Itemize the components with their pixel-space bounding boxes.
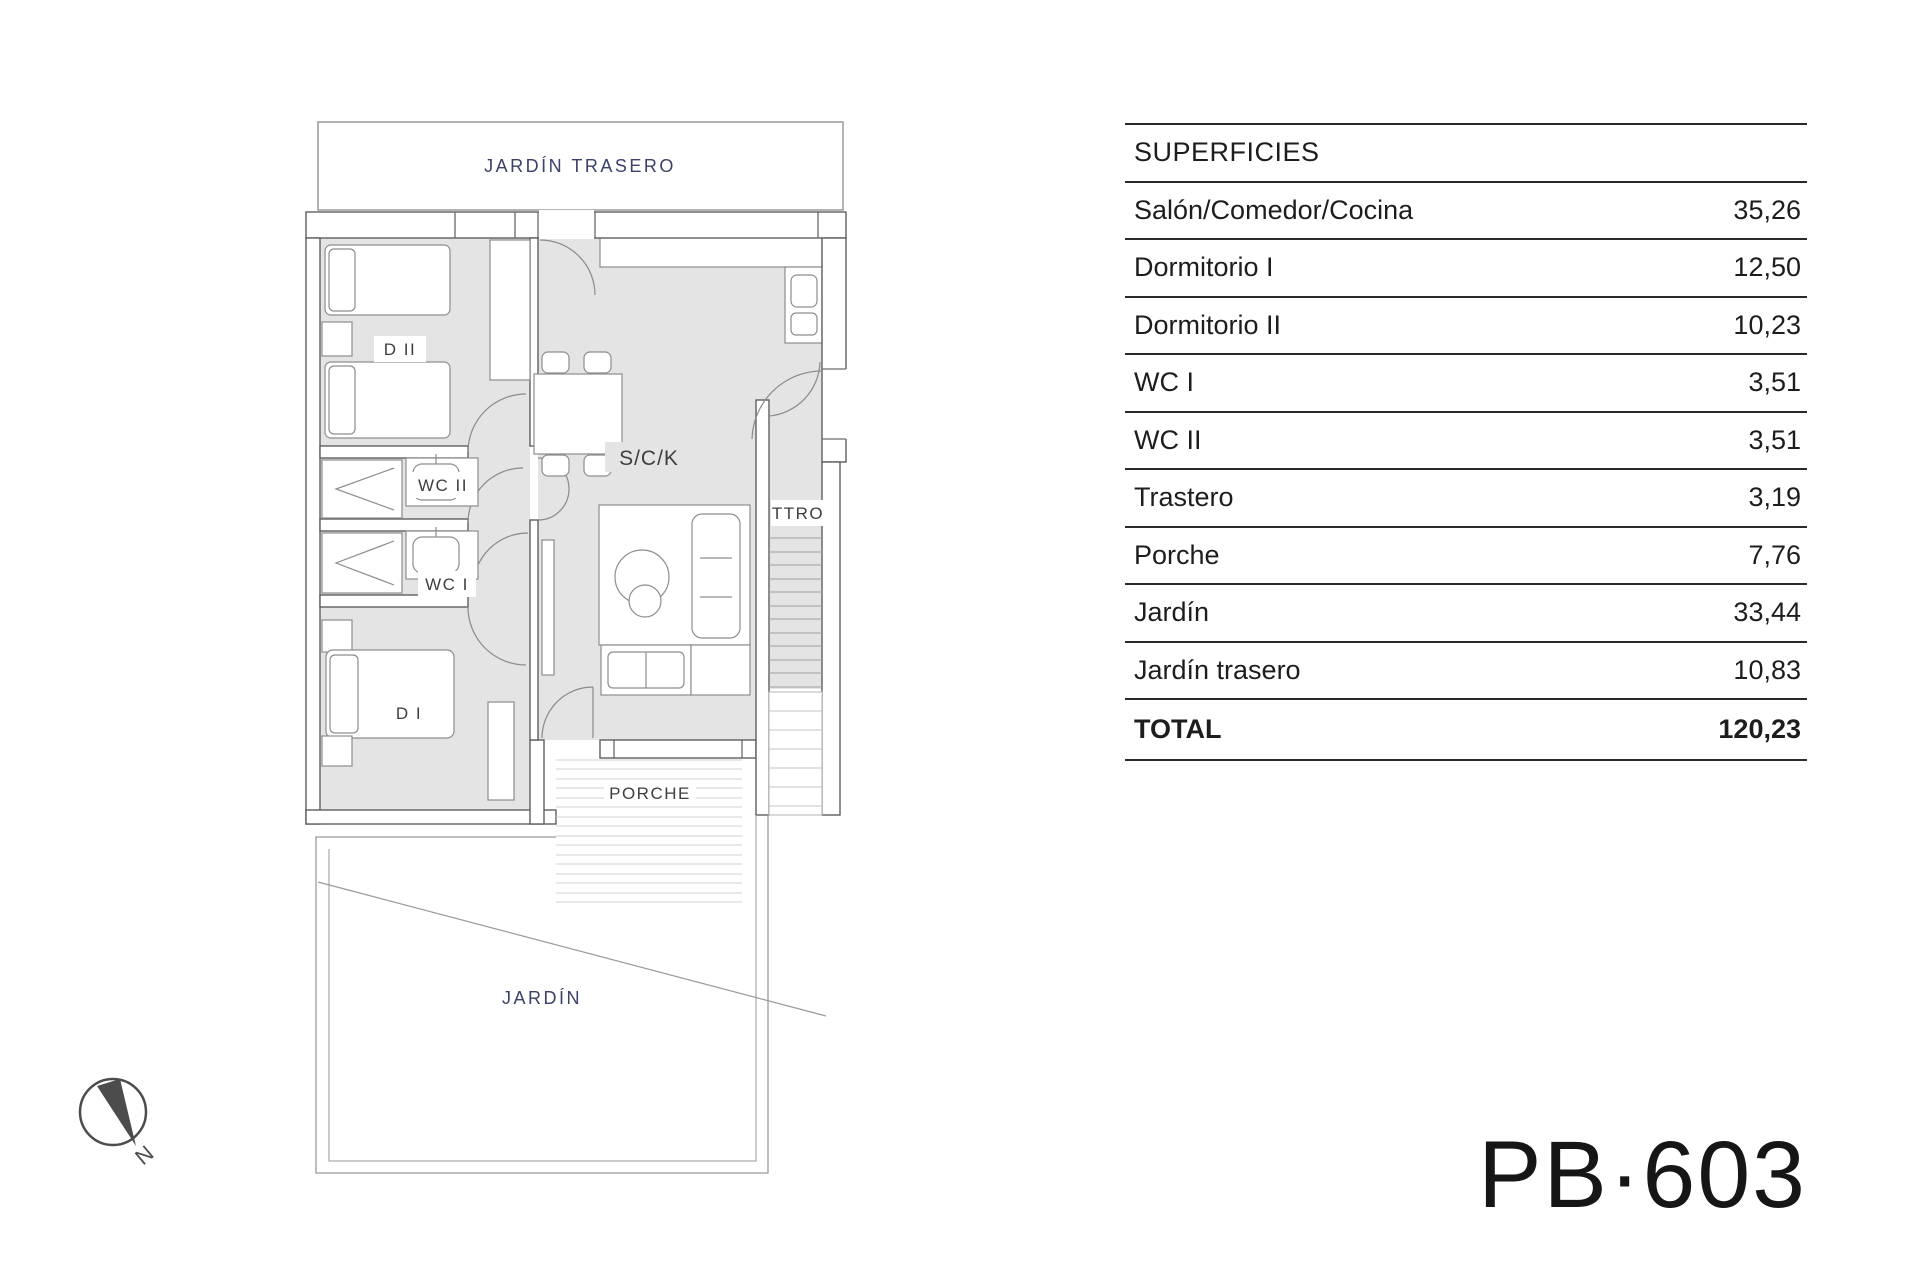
row-label: Jardín xyxy=(1134,597,1209,628)
table-header-label: SUPERFICIES xyxy=(1134,137,1320,168)
jardin-label: JARDÍN xyxy=(502,988,582,1008)
jardin-trasero-label: JARDÍN TRASERO xyxy=(484,156,676,176)
tv-unit xyxy=(542,540,554,675)
row-value: 12,50 xyxy=(1733,252,1801,283)
wall-d2-wc2 xyxy=(320,446,468,458)
wc2-label: WC II xyxy=(418,476,468,495)
row-value: 7,76 xyxy=(1748,540,1801,571)
north-compass: N xyxy=(80,1079,158,1170)
row-value: 33,44 xyxy=(1733,597,1801,628)
wardrobe-d1 xyxy=(488,702,514,800)
d2-label: D II xyxy=(384,340,416,359)
front-door-gap xyxy=(539,210,594,239)
nightstand xyxy=(322,620,352,652)
wall-bottom-left xyxy=(306,810,556,824)
nightstand xyxy=(322,736,352,766)
d1-label: D I xyxy=(396,704,422,723)
side-table xyxy=(629,585,661,617)
north-label: N xyxy=(130,1140,158,1169)
wc1-label: WC I xyxy=(425,575,469,594)
plan-code: PB·603 xyxy=(1478,1128,1807,1223)
pillow xyxy=(329,366,355,434)
north-arrow-icon xyxy=(97,1079,136,1146)
row-value: 3,19 xyxy=(1748,482,1801,513)
row-label: Trastero xyxy=(1134,482,1234,513)
row-value: 10,23 xyxy=(1733,310,1801,341)
chair xyxy=(542,352,569,373)
pillow xyxy=(330,655,358,733)
table-total-row: TOTAL 120,23 xyxy=(1125,700,1807,761)
shower-wc2 xyxy=(322,460,402,518)
outside-stairs xyxy=(769,692,822,815)
sck-label: S/C/K xyxy=(619,447,679,470)
row-label: WC II xyxy=(1134,425,1202,456)
row-label: Jardín trasero xyxy=(1134,655,1301,686)
row-label: Dormitorio II xyxy=(1134,310,1281,341)
wall-porch-left xyxy=(530,740,544,824)
table-row: Jardín trasero 10,83 xyxy=(1125,643,1807,701)
ttro-label: TTRO xyxy=(772,504,824,523)
table-row: Jardín 33,44 xyxy=(1125,585,1807,643)
row-value: 3,51 xyxy=(1748,367,1801,398)
jardin-trasero-area: JARDÍN TRASERO xyxy=(318,122,843,210)
wall-left xyxy=(306,238,320,824)
table-row: Salón/Comedor/Cocina 35,26 xyxy=(1125,183,1807,241)
table-row: WC II 3,51 xyxy=(1125,413,1807,471)
nightstand xyxy=(322,322,352,356)
row-value: 3,51 xyxy=(1748,425,1801,456)
table-row: WC I 3,51 xyxy=(1125,355,1807,413)
surfaces-table-header: SUPERFICIES xyxy=(1125,123,1807,183)
row-label: WC I xyxy=(1134,367,1194,398)
row-value: 10,83 xyxy=(1733,655,1801,686)
kitchen-sink xyxy=(791,275,817,307)
entry-door-gap xyxy=(823,369,847,439)
row-label: Dormitorio I xyxy=(1134,252,1274,283)
table-row: Trastero 3,19 xyxy=(1125,470,1807,528)
pillow xyxy=(329,249,355,311)
table-row: Dormitorio II 10,23 xyxy=(1125,298,1807,356)
surfaces-table: SUPERFICIES Salón/Comedor/Cocina 35,26 D… xyxy=(1125,123,1807,761)
wardrobe-d2 xyxy=(490,240,530,380)
plan-sheet: JARDÍN TRASERO xyxy=(0,0,1920,1280)
wall-a-lower xyxy=(530,520,538,740)
row-label: Porche xyxy=(1134,540,1220,571)
chair xyxy=(542,455,569,476)
sink-wc1 xyxy=(413,537,459,573)
wall-porch xyxy=(600,740,756,758)
row-value: 35,26 xyxy=(1733,195,1801,226)
row-label: Salón/Comedor/Cocina xyxy=(1134,195,1413,226)
table-row: Porche 7,76 xyxy=(1125,528,1807,586)
wall-stairs-left xyxy=(756,400,769,815)
wall-wc2-wc1 xyxy=(320,519,468,531)
chair xyxy=(584,352,611,373)
porche-label: PORCHE xyxy=(609,784,691,803)
total-label: TOTAL xyxy=(1134,714,1222,745)
sofa-corner xyxy=(691,645,750,695)
table-row: Dormitorio I 12,50 xyxy=(1125,240,1807,298)
kitchen-hob xyxy=(791,313,817,335)
sofa-back xyxy=(692,514,740,638)
total-value: 120,23 xyxy=(1718,714,1801,745)
